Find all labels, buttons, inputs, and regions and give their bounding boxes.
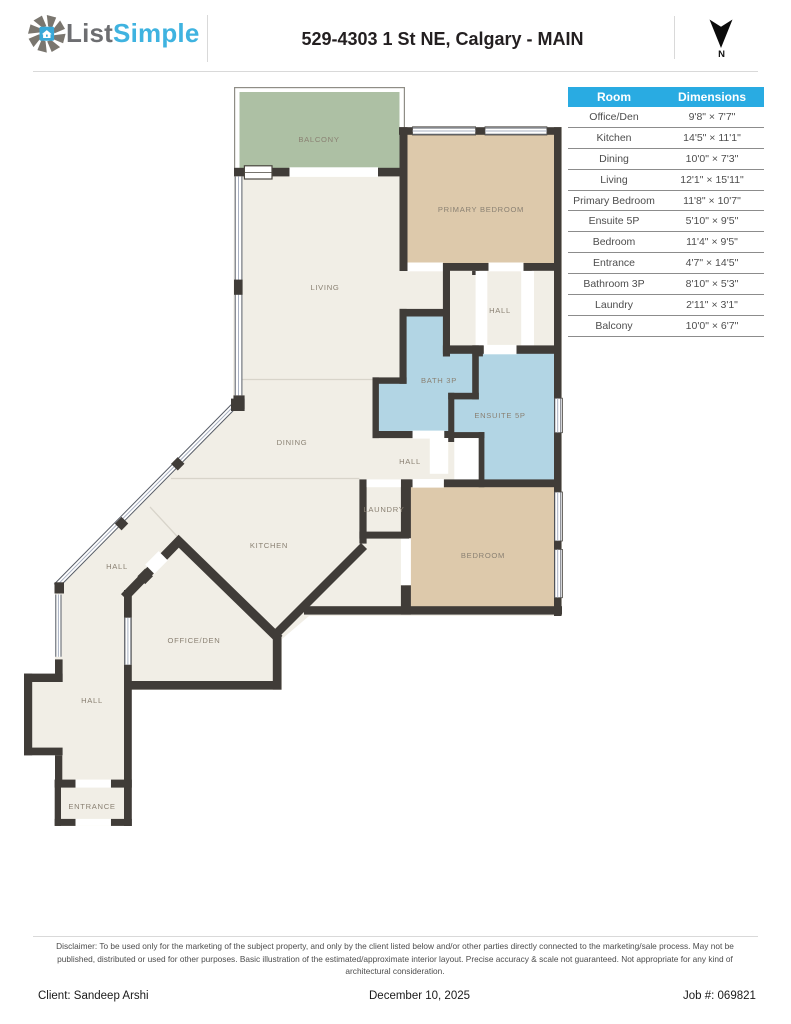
svg-text:ENTRANCE: ENTRANCE: [68, 802, 115, 811]
svg-text:BATH 3P: BATH 3P: [421, 376, 457, 385]
svg-text:HALL: HALL: [399, 457, 421, 466]
svg-text:HALL: HALL: [106, 562, 128, 571]
svg-text:KITCHEN: KITCHEN: [250, 541, 288, 550]
svg-text:PRIMARY BEDROOM: PRIMARY BEDROOM: [438, 205, 524, 214]
svg-text:LAUNDRY: LAUNDRY: [363, 505, 404, 514]
svg-text:DINING: DINING: [277, 438, 308, 447]
svg-text:LIVING: LIVING: [310, 283, 339, 292]
svg-text:BALCONY: BALCONY: [298, 135, 339, 144]
svg-text:HALL: HALL: [489, 306, 511, 315]
svg-text:ENSUITE 5P: ENSUITE 5P: [474, 411, 525, 420]
svg-text:HALL: HALL: [81, 696, 103, 705]
svg-text:BEDROOM: BEDROOM: [461, 551, 505, 560]
svg-text:OFFICE/DEN: OFFICE/DEN: [168, 636, 221, 645]
